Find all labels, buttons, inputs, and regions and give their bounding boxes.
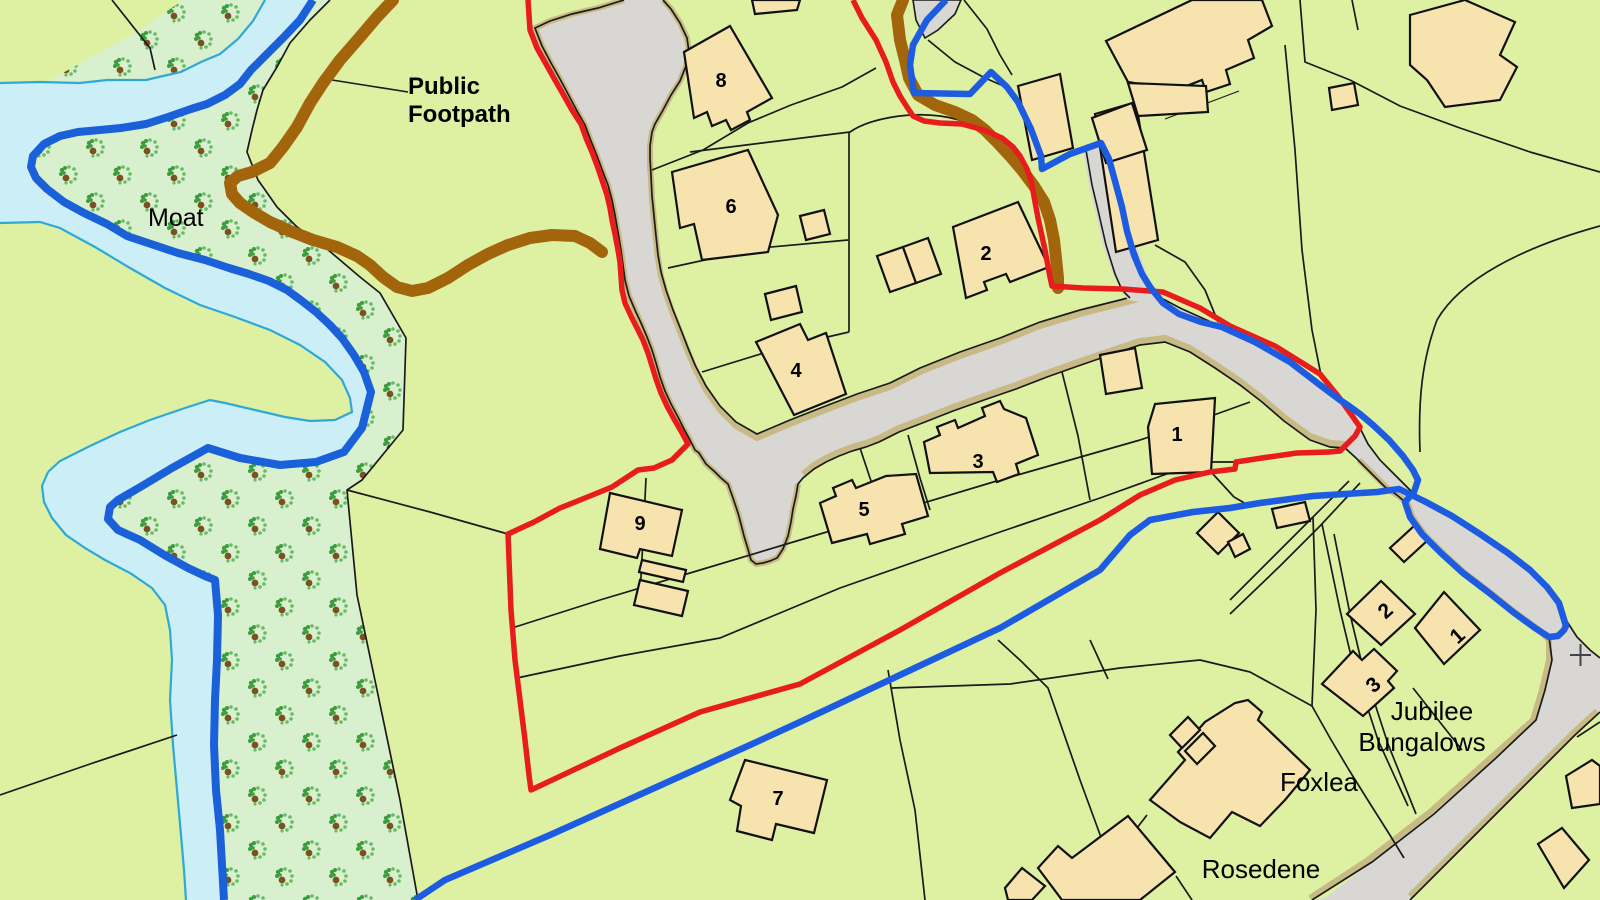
svg-text:4: 4 — [790, 360, 802, 382]
svg-text:Moat: Moat — [148, 204, 204, 232]
svg-text:9: 9 — [634, 513, 645, 535]
svg-text:2: 2 — [980, 243, 991, 265]
svg-text:Rosedene: Rosedene — [1202, 854, 1321, 884]
svg-text:1: 1 — [1171, 424, 1182, 446]
svg-text:Bungalows: Bungalows — [1358, 727, 1485, 757]
svg-text:8: 8 — [715, 70, 726, 92]
svg-text:6: 6 — [725, 196, 736, 218]
svg-text:Public: Public — [408, 73, 480, 100]
svg-text:Foxlea: Foxlea — [1280, 767, 1359, 797]
svg-text:3: 3 — [972, 451, 983, 473]
svg-text:7: 7 — [772, 788, 783, 810]
svg-text:Footpath: Footpath — [408, 101, 511, 128]
svg-text:5: 5 — [858, 499, 869, 521]
svg-text:Jubilee: Jubilee — [1391, 696, 1473, 726]
